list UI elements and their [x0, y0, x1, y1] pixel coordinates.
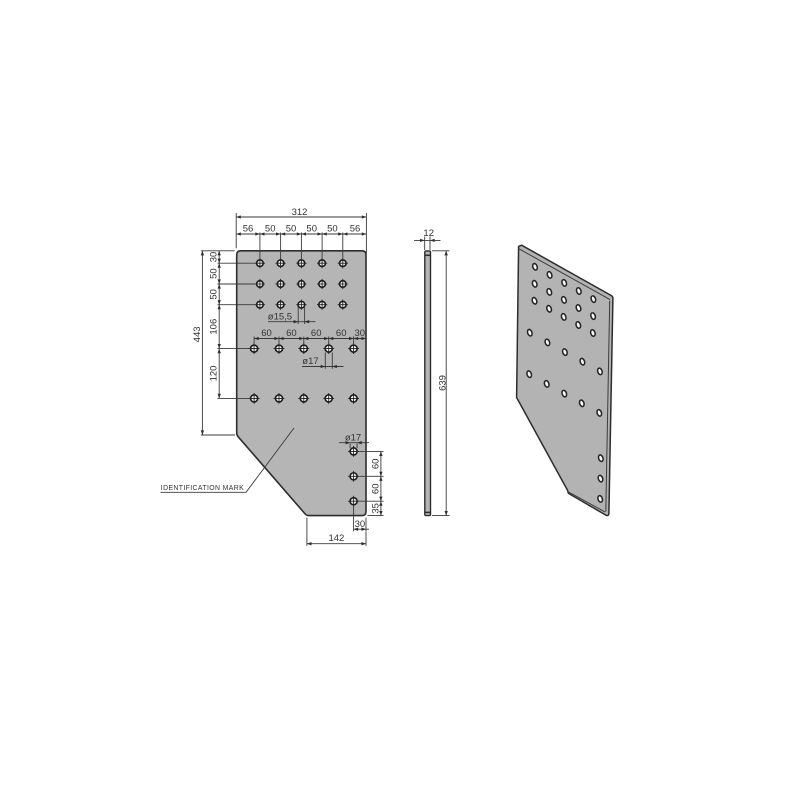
svg-text:142: 142: [328, 533, 344, 544]
svg-text:ø17: ø17: [302, 356, 318, 367]
svg-text:50: 50: [208, 289, 219, 300]
svg-text:106: 106: [208, 319, 219, 335]
svg-text:60: 60: [286, 328, 297, 339]
svg-text:60: 60: [311, 328, 322, 339]
svg-text:60: 60: [261, 328, 272, 339]
svg-text:56: 56: [243, 224, 254, 235]
svg-text:120: 120: [208, 366, 219, 382]
svg-text:30: 30: [355, 519, 366, 530]
svg-text:639: 639: [437, 375, 448, 391]
svg-text:50: 50: [265, 224, 276, 235]
svg-text:60: 60: [336, 328, 347, 339]
svg-text:ø17: ø17: [345, 432, 361, 443]
svg-text:50: 50: [327, 224, 338, 235]
svg-text:30: 30: [355, 328, 366, 339]
svg-text:12: 12: [423, 228, 434, 239]
svg-text:50: 50: [306, 224, 317, 235]
svg-text:50: 50: [208, 268, 219, 279]
svg-text:60: 60: [370, 484, 381, 495]
svg-text:IDENTIFICATION MARK: IDENTIFICATION MARK: [161, 485, 244, 492]
svg-text:35: 35: [370, 503, 381, 514]
svg-text:30: 30: [208, 252, 219, 263]
svg-text:312: 312: [292, 207, 308, 218]
svg-text:ø15,5: ø15,5: [268, 312, 292, 323]
svg-text:60: 60: [370, 459, 381, 470]
svg-text:50: 50: [286, 224, 297, 235]
svg-text:443: 443: [192, 326, 203, 342]
svg-text:56: 56: [350, 224, 361, 235]
